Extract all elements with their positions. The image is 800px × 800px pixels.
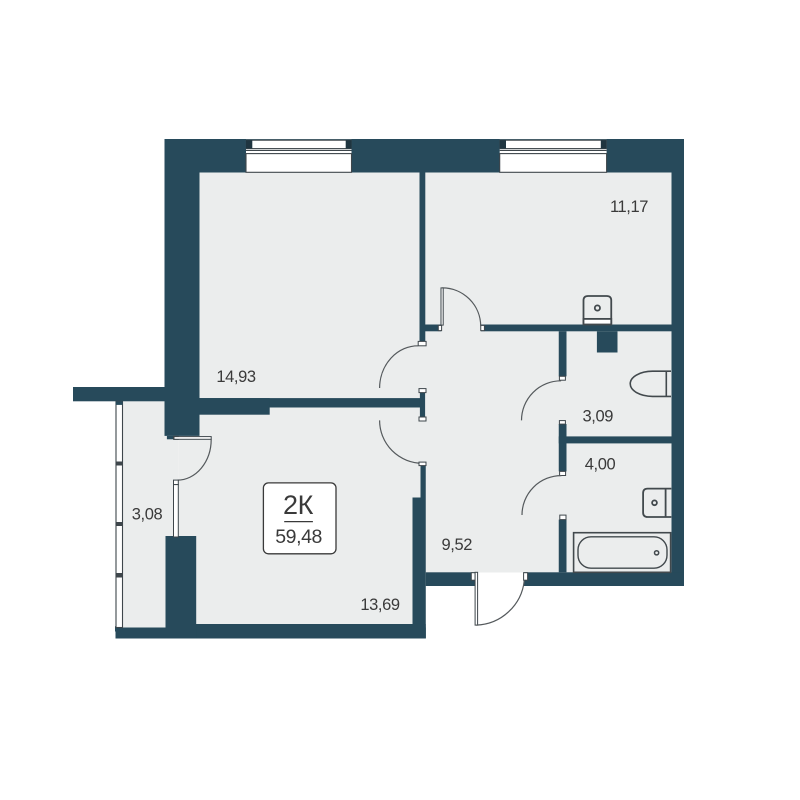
svg-text:4,00: 4,00 bbox=[585, 456, 616, 474]
svg-text:59,48: 59,48 bbox=[275, 526, 322, 548]
svg-text:3,08: 3,08 bbox=[132, 506, 163, 524]
svg-text:3,09: 3,09 bbox=[583, 408, 614, 426]
svg-text:9,52: 9,52 bbox=[442, 536, 473, 554]
svg-text:11,17: 11,17 bbox=[610, 198, 648, 216]
svg-text:2К: 2К bbox=[283, 490, 314, 520]
svg-text:13,69: 13,69 bbox=[360, 596, 400, 614]
svg-text:14,93: 14,93 bbox=[216, 368, 256, 386]
